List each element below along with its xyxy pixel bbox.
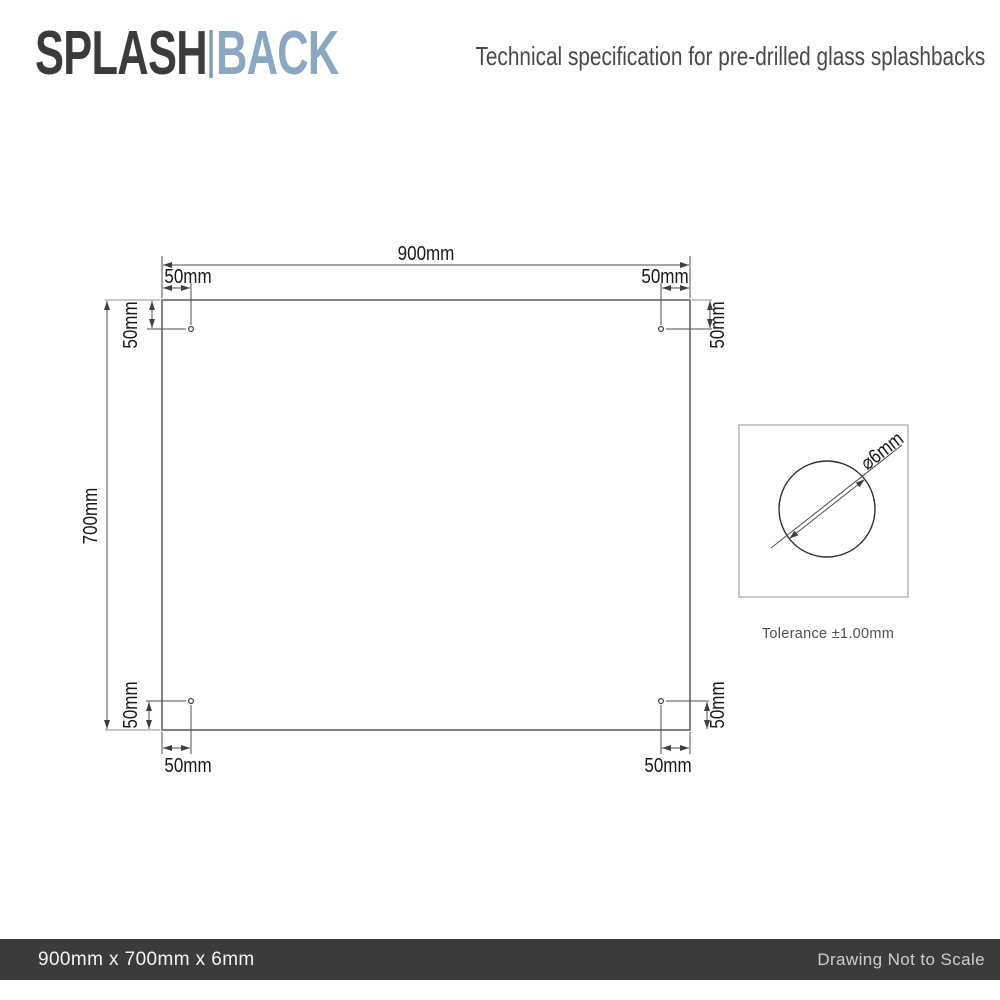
footer-bar: 900mm x 700mm x 6mm Drawing Not to Scale bbox=[0, 939, 1000, 980]
drill-hole bbox=[189, 699, 194, 704]
product-dimensions: 900mm x 700mm x 6mm bbox=[38, 939, 255, 980]
drill-hole bbox=[659, 327, 664, 332]
panel-width-label: 900mm bbox=[398, 242, 455, 265]
drill-hole bbox=[189, 327, 194, 332]
glass-panel-outline bbox=[162, 300, 690, 730]
hole-offset-label: 50mm bbox=[644, 754, 691, 777]
panel-height-label: 700mm bbox=[79, 488, 102, 545]
hole-offset-label: 50mm bbox=[641, 265, 688, 288]
hole-offset-label: 50mm bbox=[706, 301, 729, 348]
dim-panel-width: 900mm bbox=[162, 242, 690, 298]
drill-hole bbox=[659, 699, 664, 704]
tolerance-label: Tolerance ±1.00mm bbox=[762, 626, 894, 642]
technical-drawing: 900mm 700mm 50mm 50mm 50mm 50mm bbox=[0, 0, 1000, 1000]
hole-offset-label: 50mm bbox=[164, 754, 211, 777]
spec-sheet: SPLASH BACK Technical specification for … bbox=[0, 0, 1000, 1000]
hole-offset-label: 50mm bbox=[164, 265, 211, 288]
scale-note: Drawing Not to Scale bbox=[817, 939, 985, 980]
hole-offset-label: 50mm bbox=[119, 301, 142, 348]
hole-offset-label: 50mm bbox=[706, 681, 729, 728]
dim-panel-height: 700mm bbox=[79, 300, 160, 730]
hole-offset-label: 50mm bbox=[119, 681, 142, 728]
hole-detail-view: ⌀6mm Tolerance ±1.00mm bbox=[739, 425, 908, 642]
